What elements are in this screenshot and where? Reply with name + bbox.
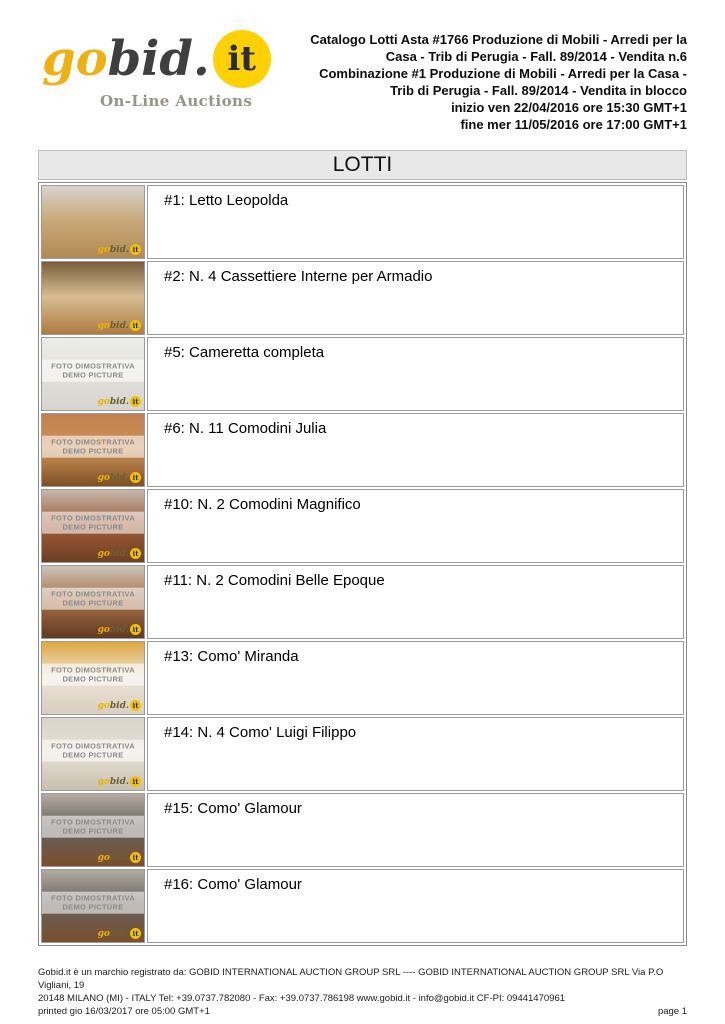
- lot-title: #15: Como' Glamour: [147, 793, 684, 867]
- auction-paddle-icon: it: [213, 30, 271, 88]
- demo-overlay-line1: FOTO DIMOSTRATIVA: [42, 438, 144, 447]
- logo-go-text: go: [42, 30, 108, 88]
- lot-thumbnail: FOTO DIMOSTRATIVADEMO PICTUREgobid.it: [42, 338, 144, 410]
- demo-picture-overlay: FOTO DIMOSTRATIVADEMO PICTURE: [42, 360, 144, 382]
- demo-picture-overlay: FOTO DIMOSTRATIVADEMO PICTURE: [42, 588, 144, 610]
- demo-overlay-line1: FOTO DIMOSTRATIVA: [42, 894, 144, 903]
- watermark-go: go: [98, 549, 110, 559]
- watermark-paddle-icon: it: [130, 624, 141, 635]
- lot-thumbnail: FOTO DIMOSTRATIVADEMO PICTUREgobid.it: [42, 490, 144, 562]
- lot-row: gobid.it#2: N. 4 Cassettiere Interne per…: [41, 261, 684, 335]
- lot-thumbnail-cell: FOTO DIMOSTRATIVADEMO PICTUREgobid.it: [41, 489, 145, 563]
- demo-overlay-line2: DEMO PICTURE: [42, 751, 144, 760]
- gobid-logo: go bid. it On-Line Auctions: [42, 30, 262, 110]
- lot-title: #2: N. 4 Cassettiere Interne per Armadio: [147, 261, 684, 335]
- demo-overlay-line1: FOTO DIMOSTRATIVA: [42, 362, 144, 371]
- catalog-page: go bid. it On-Line Auctions Catalogo Lot…: [0, 0, 725, 1024]
- gobid-watermark: gobid.it: [98, 776, 141, 788]
- lot-title: #14: N. 4 Como' Luigi Filippo: [147, 717, 684, 791]
- demo-overlay-line2: DEMO PICTURE: [42, 675, 144, 684]
- watermark-bid: bid.: [110, 321, 129, 331]
- watermark-go: go: [98, 473, 110, 483]
- lot-thumbnail: gobid.it: [42, 262, 144, 334]
- lot-thumbnail: FOTO DIMOSTRATIVADEMO PICTUREgobid.it: [42, 794, 144, 866]
- page-footer: Gobid.it è un marchio registrato da: GOB…: [38, 966, 687, 1018]
- lot-row: FOTO DIMOSTRATIVADEMO PICTUREgobid.it#6:…: [41, 413, 684, 487]
- lot-row: gobid.it#1: Letto Leopolda: [41, 185, 684, 259]
- watermark-paddle-icon: it: [130, 700, 141, 711]
- auction-header-line: Combinazione #1 Produzione di Mobili - A…: [267, 65, 687, 82]
- lot-row: FOTO DIMOSTRATIVADEMO PICTUREgobid.it#16…: [41, 869, 684, 943]
- lots-table-body: gobid.it#1: Letto Leopoldagobid.it#2: N.…: [41, 185, 684, 943]
- auction-header-info: Catalogo Lotti Asta #1766 Produzione di …: [267, 31, 687, 133]
- lot-title: #1: Letto Leopolda: [147, 185, 684, 259]
- gobid-watermark: gobid.it: [98, 700, 141, 712]
- gobid-watermark: gobid.it: [98, 928, 141, 940]
- lot-thumbnail-cell: FOTO DIMOSTRATIVADEMO PICTUREgobid.it: [41, 869, 145, 943]
- lot-title: #6: N. 11 Comodini Julia: [147, 413, 684, 487]
- watermark-go: go: [98, 321, 110, 331]
- auction-header-line: inizio ven 22/04/2016 ore 15:30 GMT+1: [267, 99, 687, 116]
- footer-registration-line: Gobid.it è un marchio registrato da: GOB…: [38, 966, 687, 992]
- gobid-logo-wordmark: go bid. it: [42, 30, 262, 88]
- watermark-go: go: [98, 777, 110, 787]
- lot-thumbnail-cell: FOTO DIMOSTRATIVADEMO PICTUREgobid.it: [41, 793, 145, 867]
- watermark-paddle-icon: it: [130, 320, 141, 331]
- demo-overlay-line2: DEMO PICTURE: [42, 599, 144, 608]
- demo-overlay-line2: DEMO PICTURE: [42, 827, 144, 836]
- lot-thumbnail-cell: FOTO DIMOSTRATIVADEMO PICTUREgobid.it: [41, 717, 145, 791]
- gobid-watermark: gobid.it: [98, 548, 141, 560]
- demo-picture-overlay: FOTO DIMOSTRATIVADEMO PICTURE: [42, 664, 144, 686]
- footer-contact-line: 20148 MILANO (MI) - ITALY Tel: +39.0737.…: [38, 992, 687, 1005]
- demo-picture-overlay: FOTO DIMOSTRATIVADEMO PICTURE: [42, 436, 144, 458]
- gobid-watermark: gobid.it: [98, 396, 141, 408]
- auction-header-line: Casa - Trib di Perugia - Fall. 89/2014 -…: [267, 48, 687, 65]
- demo-overlay-line1: FOTO DIMOSTRATIVA: [42, 590, 144, 599]
- lots-table: gobid.it#1: Letto Leopoldagobid.it#2: N.…: [38, 182, 687, 946]
- watermark-paddle-icon: it: [130, 548, 141, 559]
- demo-picture-overlay: FOTO DIMOSTRATIVADEMO PICTURE: [42, 512, 144, 534]
- demo-overlay-line2: DEMO PICTURE: [42, 523, 144, 532]
- watermark-go: go: [98, 245, 110, 255]
- watermark-go: go: [98, 929, 110, 939]
- gobid-watermark: gobid.it: [98, 852, 141, 864]
- lot-thumbnail-cell: FOTO DIMOSTRATIVADEMO PICTUREgobid.it: [41, 565, 145, 639]
- lot-thumbnail-cell: FOTO DIMOSTRATIVADEMO PICTUREgobid.it: [41, 641, 145, 715]
- watermark-go: go: [98, 625, 110, 635]
- watermark-go: go: [98, 397, 110, 407]
- lot-title: #16: Como' Glamour: [147, 869, 684, 943]
- demo-overlay-line2: DEMO PICTURE: [42, 371, 144, 380]
- watermark-go: go: [98, 853, 110, 863]
- watermark-bid: bid.: [110, 397, 129, 407]
- footer-printed-date: printed gio 16/03/2017 ore 05:00 GMT+1: [38, 1005, 210, 1018]
- lot-row: FOTO DIMOSTRATIVADEMO PICTUREgobid.it#11…: [41, 565, 684, 639]
- gobid-watermark: gobid.it: [98, 472, 141, 484]
- auction-header-line: Trib di Perugia - Fall. 89/2014 - Vendit…: [267, 82, 687, 99]
- demo-overlay-line1: FOTO DIMOSTRATIVA: [42, 818, 144, 827]
- lot-title: #11: N. 2 Comodini Belle Epoque: [147, 565, 684, 639]
- lot-thumbnail: FOTO DIMOSTRATIVADEMO PICTUREgobid.it: [42, 870, 144, 942]
- gobid-watermark: gobid.it: [98, 624, 141, 636]
- lot-row: FOTO DIMOSTRATIVADEMO PICTUREgobid.it#10…: [41, 489, 684, 563]
- watermark-bid: bid.: [110, 625, 129, 635]
- auction-header-line: fine mer 11/05/2016 ore 17:00 GMT+1: [267, 116, 687, 133]
- lot-thumbnail: FOTO DIMOSTRATIVADEMO PICTUREgobid.it: [42, 642, 144, 714]
- logo-tagline: On-Line Auctions: [100, 92, 262, 110]
- watermark-paddle-icon: it: [130, 244, 141, 255]
- watermark-paddle-icon: it: [130, 852, 141, 863]
- demo-overlay-line2: DEMO PICTURE: [42, 447, 144, 456]
- watermark-bid: bid.: [110, 853, 129, 863]
- section-title-bar: LOTTI: [38, 150, 687, 180]
- lot-thumbnail: gobid.it: [42, 186, 144, 258]
- lot-title: #10: N. 2 Comodini Magnifico: [147, 489, 684, 563]
- auction-header-line: Catalogo Lotti Asta #1766 Produzione di …: [267, 31, 687, 48]
- watermark-paddle-icon: it: [130, 928, 141, 939]
- lot-row: FOTO DIMOSTRATIVADEMO PICTUREgobid.it#14…: [41, 717, 684, 791]
- lot-title: #5: Cameretta completa: [147, 337, 684, 411]
- demo-overlay-line1: FOTO DIMOSTRATIVA: [42, 514, 144, 523]
- lot-row: FOTO DIMOSTRATIVADEMO PICTUREgobid.it#5:…: [41, 337, 684, 411]
- gobid-watermark: gobid.it: [98, 320, 141, 332]
- lot-thumbnail-cell: gobid.it: [41, 185, 145, 259]
- watermark-bid: bid.: [110, 245, 129, 255]
- lot-row: FOTO DIMOSTRATIVADEMO PICTUREgobid.it#13…: [41, 641, 684, 715]
- demo-picture-overlay: FOTO DIMOSTRATIVADEMO PICTURE: [42, 892, 144, 914]
- watermark-bid: bid.: [110, 701, 129, 711]
- lot-thumbnail-cell: FOTO DIMOSTRATIVADEMO PICTUREgobid.it: [41, 337, 145, 411]
- watermark-paddle-icon: it: [130, 396, 141, 407]
- lot-row: FOTO DIMOSTRATIVADEMO PICTUREgobid.it#15…: [41, 793, 684, 867]
- section-title: LOTTI: [333, 153, 393, 177]
- lot-thumbnail: FOTO DIMOSTRATIVADEMO PICTUREgobid.it: [42, 414, 144, 486]
- lot-thumbnail: FOTO DIMOSTRATIVADEMO PICTUREgobid.it: [42, 718, 144, 790]
- logo-bid-text: bid.: [108, 30, 210, 88]
- watermark-bid: bid.: [110, 473, 129, 483]
- paddle-it-text: it: [213, 30, 271, 88]
- watermark-go: go: [98, 701, 110, 711]
- watermark-paddle-icon: it: [130, 776, 141, 787]
- demo-picture-overlay: FOTO DIMOSTRATIVADEMO PICTURE: [42, 816, 144, 838]
- demo-overlay-line1: FOTO DIMOSTRATIVA: [42, 666, 144, 675]
- demo-overlay-line1: FOTO DIMOSTRATIVA: [42, 742, 144, 751]
- lot-thumbnail: FOTO DIMOSTRATIVADEMO PICTUREgobid.it: [42, 566, 144, 638]
- footer-page-number: page 1: [658, 1005, 687, 1018]
- lot-thumbnail-cell: FOTO DIMOSTRATIVADEMO PICTUREgobid.it: [41, 413, 145, 487]
- gobid-watermark: gobid.it: [98, 244, 141, 256]
- watermark-bid: bid.: [110, 929, 129, 939]
- watermark-bid: bid.: [110, 549, 129, 559]
- watermark-bid: bid.: [110, 777, 129, 787]
- watermark-paddle-icon: it: [130, 472, 141, 483]
- lot-thumbnail-cell: gobid.it: [41, 261, 145, 335]
- demo-overlay-line2: DEMO PICTURE: [42, 903, 144, 912]
- lot-title: #13: Como' Miranda: [147, 641, 684, 715]
- demo-picture-overlay: FOTO DIMOSTRATIVADEMO PICTURE: [42, 740, 144, 762]
